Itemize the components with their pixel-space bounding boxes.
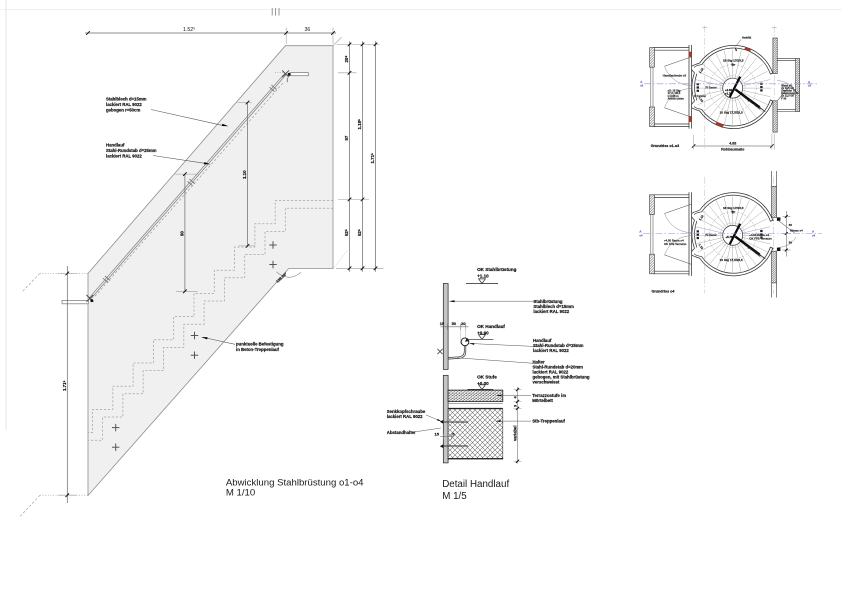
svg-text:75 Raster: 75 Raster xyxy=(705,86,717,90)
svg-text:+5.78: +5.78 xyxy=(726,235,734,239)
svg-text:90: 90 xyxy=(180,231,185,236)
svg-text:Grundriss o1-o3: Grundriss o1-o3 xyxy=(651,144,679,148)
svg-text:lackiert RAL 9022: lackiert RAL 9022 xyxy=(106,102,142,107)
svg-text:Antritt unten: Antritt unten xyxy=(668,97,684,101)
svg-text:1.52⁵: 1.52⁵ xyxy=(183,27,195,33)
svg-text:variabel: variabel xyxy=(512,426,517,441)
svg-text:36: 36 xyxy=(305,27,311,33)
svg-text:Grundriss o4: Grundriss o4 xyxy=(652,290,676,294)
svg-text:18 Stg 17/23,5: 18 Stg 17/23,5 xyxy=(723,59,744,63)
svg-text:Handlauf: Handlauf xyxy=(106,143,125,148)
svg-text:M 1/5: M 1/5 xyxy=(442,491,467,502)
svg-text:4.88: 4.88 xyxy=(729,142,736,146)
svg-text:50: 50 xyxy=(452,321,457,326)
svg-text:10 Stg 17,5/23,5: 10 Stg 17,5/23,5 xyxy=(720,111,743,115)
svg-text:Niveau o4: Niveau o4 xyxy=(790,229,803,233)
svg-text:1.71⁵: 1.71⁵ xyxy=(62,380,67,391)
svg-text:OK Stahlbrüstung: OK Stahlbrüstung xyxy=(477,267,516,272)
svg-text:lackiert RAL 9022: lackiert RAL 9022 xyxy=(106,153,142,158)
svg-text:Mörtelbett: Mörtelbett xyxy=(532,398,553,403)
svg-text:OK FFB Terrazzo: OK FFB Terrazzo xyxy=(749,236,772,240)
svg-text:20⁸: 20⁸ xyxy=(344,56,349,63)
svg-text:Antritt: Antritt xyxy=(742,36,751,40)
svg-text:punktuelle Befestigung: punktuelle Befestigung xyxy=(236,342,284,347)
svg-text:52⁵: 52⁵ xyxy=(344,229,349,236)
svg-text:20: 20 xyxy=(461,321,466,326)
svg-text:18 Stg 17/23,5: 18 Stg 17/23,5 xyxy=(723,206,744,210)
svg-text:Stahl-Rundstab d=25mm: Stahl-Rundstab d=25mm xyxy=(106,148,157,153)
svg-text:OK FFB Terrazzo: OK FFB Terrazzo xyxy=(664,242,687,246)
svg-text:1.18⁵: 1.18⁵ xyxy=(357,119,362,130)
svg-text:OK Stufe: OK Stufe xyxy=(477,375,497,380)
svg-text:M 1/10: M 1/10 xyxy=(226,487,255,498)
svg-text:F 90: F 90 xyxy=(781,97,787,100)
svg-text:86: 86 xyxy=(789,241,793,245)
svg-text:Detail Handlauf: Detail Handlauf xyxy=(442,479,509,490)
svg-text:Handlaufende o3: Handlaufende o3 xyxy=(663,73,687,77)
svg-text:lackiert RAL 9022: lackiert RAL 9022 xyxy=(533,348,569,353)
svg-text:3: 3 xyxy=(513,405,517,407)
svg-text:1.71⁵: 1.71⁵ xyxy=(370,153,375,164)
svg-text:OK Handlauf: OK Handlauf xyxy=(477,324,505,329)
svg-text:1.10: 1.10 xyxy=(242,170,247,179)
svg-text:52⁵: 52⁵ xyxy=(357,229,362,236)
svg-text:lackiert RAL 9022: lackiert RAL 9022 xyxy=(387,414,423,419)
svg-text:Stahlblech d=15mm: Stahlblech d=15mm xyxy=(106,97,147,102)
svg-text:10 Stg 17,5/23,5: 10 Stg 17,5/23,5 xyxy=(720,258,743,262)
svg-text:+1.10: +1.10 xyxy=(477,274,489,279)
svg-text:Stb-Treppenlauf: Stb-Treppenlauf xyxy=(532,419,565,424)
svg-text:W Fenster: W Fenster xyxy=(694,95,706,98)
svg-text:Rohbaumaße: Rohbaumaße xyxy=(721,148,744,152)
svg-text:97: 97 xyxy=(344,135,349,140)
svg-text:verschweisst: verschweisst xyxy=(533,379,561,384)
svg-text:gebogen r=50cm: gebogen r=50cm xyxy=(106,107,140,112)
svg-text:in Beton-Treppenlauf: in Beton-Treppenlauf xyxy=(236,347,280,352)
svg-text:Abstandhalter: Abstandhalter xyxy=(387,430,416,435)
svg-text:15: 15 xyxy=(440,321,445,326)
svg-text:+1.31: +1.31 xyxy=(725,92,733,96)
svg-text:86: 86 xyxy=(789,223,793,227)
svg-text:15: 15 xyxy=(435,431,440,436)
svg-text:lackiert RAL 9022: lackiert RAL 9022 xyxy=(533,309,569,314)
